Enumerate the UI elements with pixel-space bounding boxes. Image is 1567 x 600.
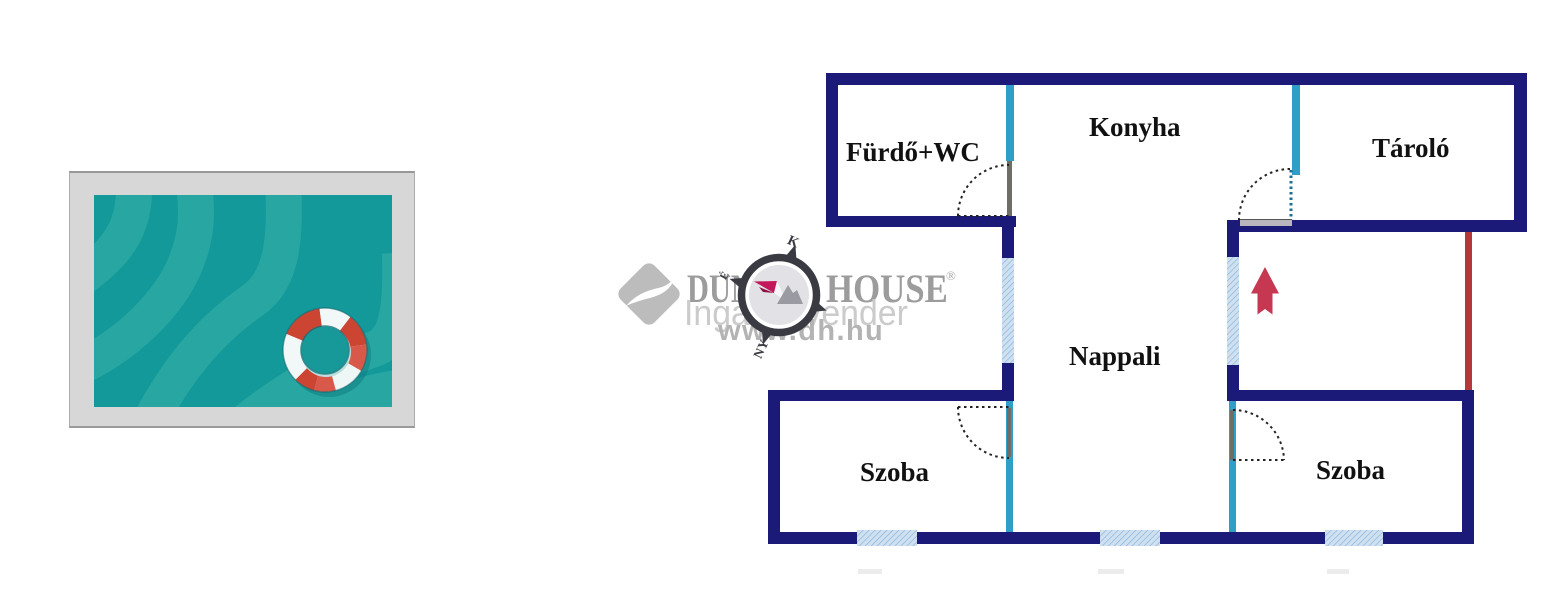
svg-text:É: É xyxy=(719,270,732,282)
svg-text:K: K xyxy=(785,233,801,251)
svg-text:NY: NY xyxy=(750,337,772,361)
